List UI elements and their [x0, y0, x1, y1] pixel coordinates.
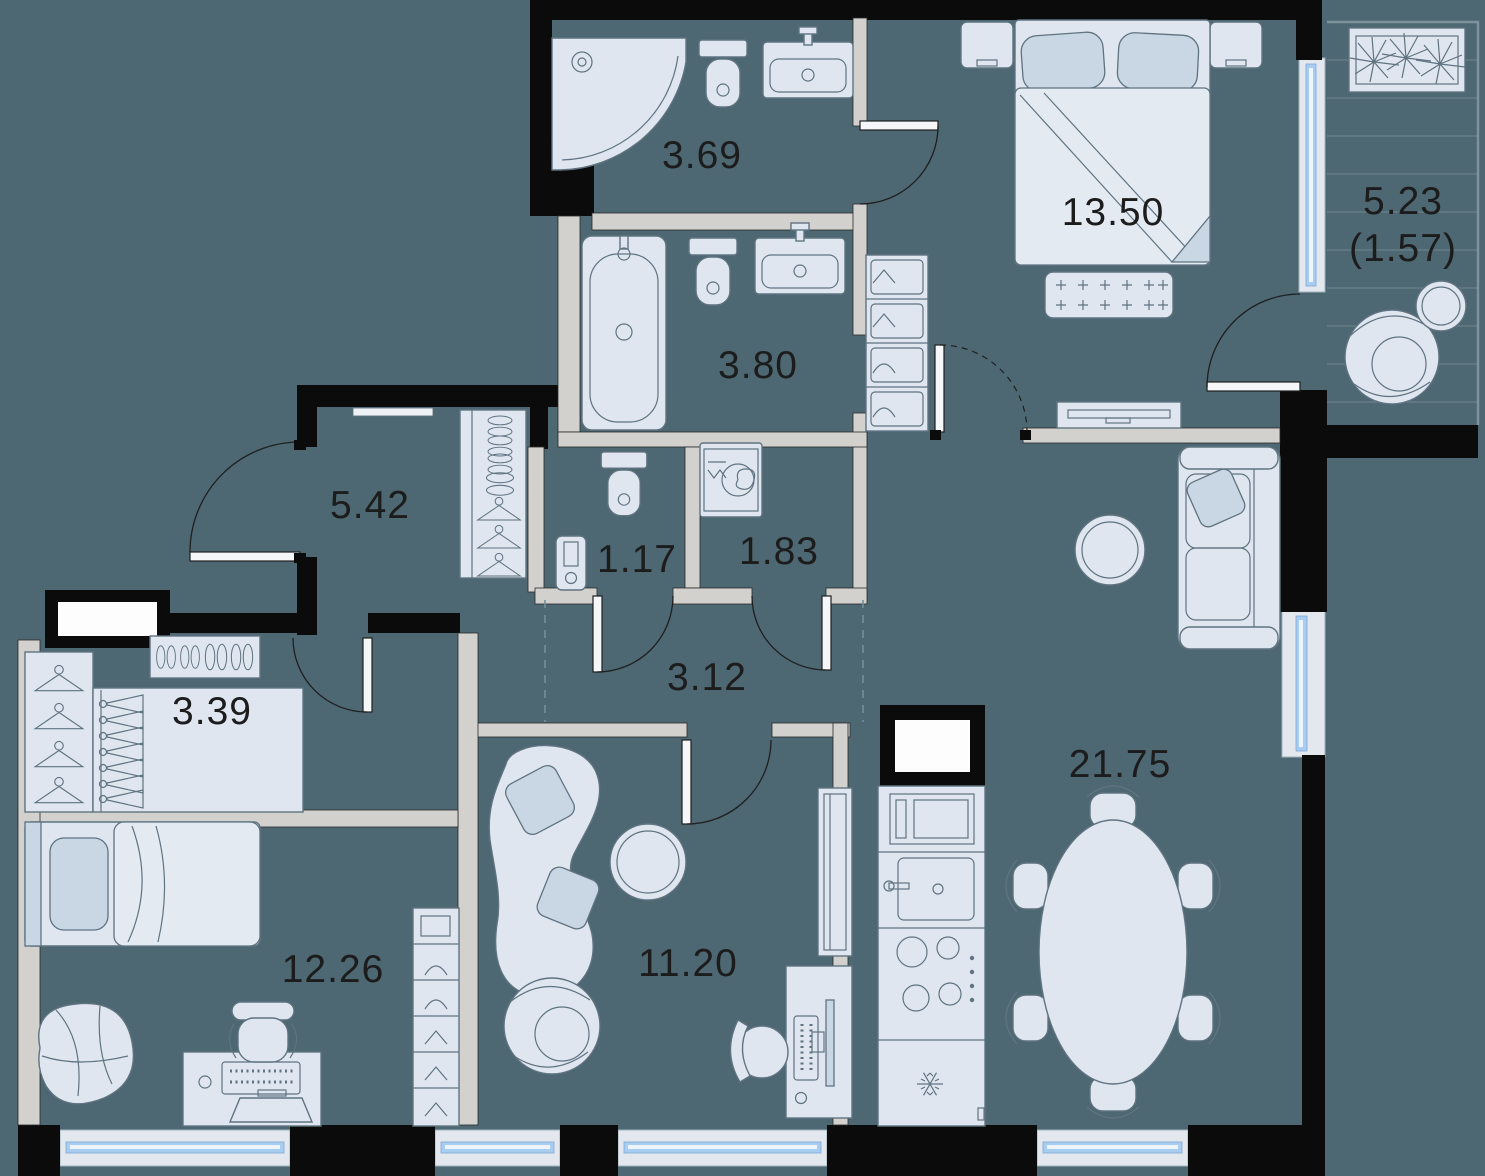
- toilet-icon: [601, 452, 647, 516]
- nightstand-left: [961, 22, 1013, 68]
- label-balcony-area-secondary: (1.57): [1349, 227, 1457, 270]
- label-closet: 3.39: [172, 690, 252, 733]
- label-hallway: 5.42: [330, 484, 410, 527]
- door-wc: [593, 596, 673, 672]
- toilet-icon: [699, 40, 747, 107]
- plant-box: [1349, 28, 1465, 92]
- label-bathroom-shower: 3.69: [662, 134, 742, 177]
- label-corridor: 3.12: [667, 656, 747, 699]
- corner-sink-icon: [556, 536, 586, 590]
- curved-sofa-icon: [489, 745, 602, 996]
- closet-room: [25, 636, 303, 812]
- kids-room: [25, 822, 459, 1126]
- washing-machine-icon: [700, 443, 762, 517]
- window-bedroom-balcony: [1299, 58, 1325, 292]
- toilet-icon: [689, 238, 737, 305]
- bathtub-icon: [582, 236, 666, 430]
- coffee-table-icon: [1075, 515, 1145, 585]
- entrance-door: [190, 440, 306, 563]
- desk-icon: [183, 1052, 321, 1126]
- label-wc: 1.17: [597, 538, 677, 581]
- round-armchair-icon: [504, 978, 600, 1074]
- bean-bag-icon: [39, 1003, 134, 1103]
- window-kids-room: [60, 1130, 290, 1166]
- kitchen-counter: [878, 786, 985, 1126]
- hall-console: [353, 408, 433, 416]
- round-table-icon: [610, 824, 686, 900]
- shaft-kitchen: [880, 705, 985, 787]
- label-kids-room: 12.26: [282, 948, 385, 991]
- label-balcony-area: 5.23: [1363, 180, 1443, 223]
- window-study-left: [435, 1130, 560, 1166]
- balcony: [1327, 22, 1478, 425]
- tv-console: [1057, 402, 1181, 428]
- shoe-shelf: [150, 636, 260, 678]
- door-study: [682, 740, 771, 824]
- window-living-side: [1282, 610, 1325, 757]
- floor-plan-canvas: 3.69 3.80 13.50 5.23 (1.57) 5.42 1.17 1.…: [0, 0, 1485, 1176]
- door-balcony: [1207, 294, 1300, 391]
- door-bathroom-shower: [860, 121, 938, 204]
- floor-plan: 3.69 3.80 13.50 5.23 (1.57) 5.42 1.17 1.…: [0, 0, 1485, 1176]
- study-room: [489, 745, 852, 1118]
- door-closet: [293, 638, 372, 712]
- window-living: [1037, 1130, 1188, 1166]
- label-study: 11.20: [638, 942, 738, 985]
- window-study-right: [618, 1130, 827, 1166]
- hall-wardrobe: [460, 410, 526, 578]
- single-bed-icon: [25, 822, 260, 946]
- desk-chair-icon: [229, 1002, 296, 1062]
- laundry-room: [700, 443, 762, 517]
- living-sofa-icon: [1178, 447, 1280, 649]
- nightstand-right: [1210, 22, 1262, 68]
- label-bathroom-main: 3.80: [718, 344, 798, 387]
- linen-cabinet: [866, 255, 928, 431]
- label-laundry: 1.83: [739, 530, 819, 573]
- study-desk-icon: [786, 966, 852, 1118]
- study-chair-icon: [730, 1020, 788, 1082]
- label-living-kitchen: 21.75: [1069, 743, 1172, 786]
- balcony-table: [1416, 281, 1466, 331]
- door-laundry: [752, 596, 831, 670]
- sink-icon: [763, 27, 853, 98]
- wall-cabinet: [818, 788, 852, 956]
- shelving-unit: [413, 908, 459, 1126]
- belt-rack: [25, 652, 93, 812]
- living-kitchen-room: [878, 447, 1280, 1126]
- sink-icon: [755, 223, 845, 294]
- shaft-closet: [58, 602, 157, 636]
- dining-table-icon: [1006, 786, 1220, 1118]
- label-bedroom: 13.50: [1062, 191, 1165, 234]
- bed-bench: [1045, 272, 1173, 318]
- bathroom-main-room: [582, 223, 845, 430]
- door-bedroom: [930, 345, 1031, 440]
